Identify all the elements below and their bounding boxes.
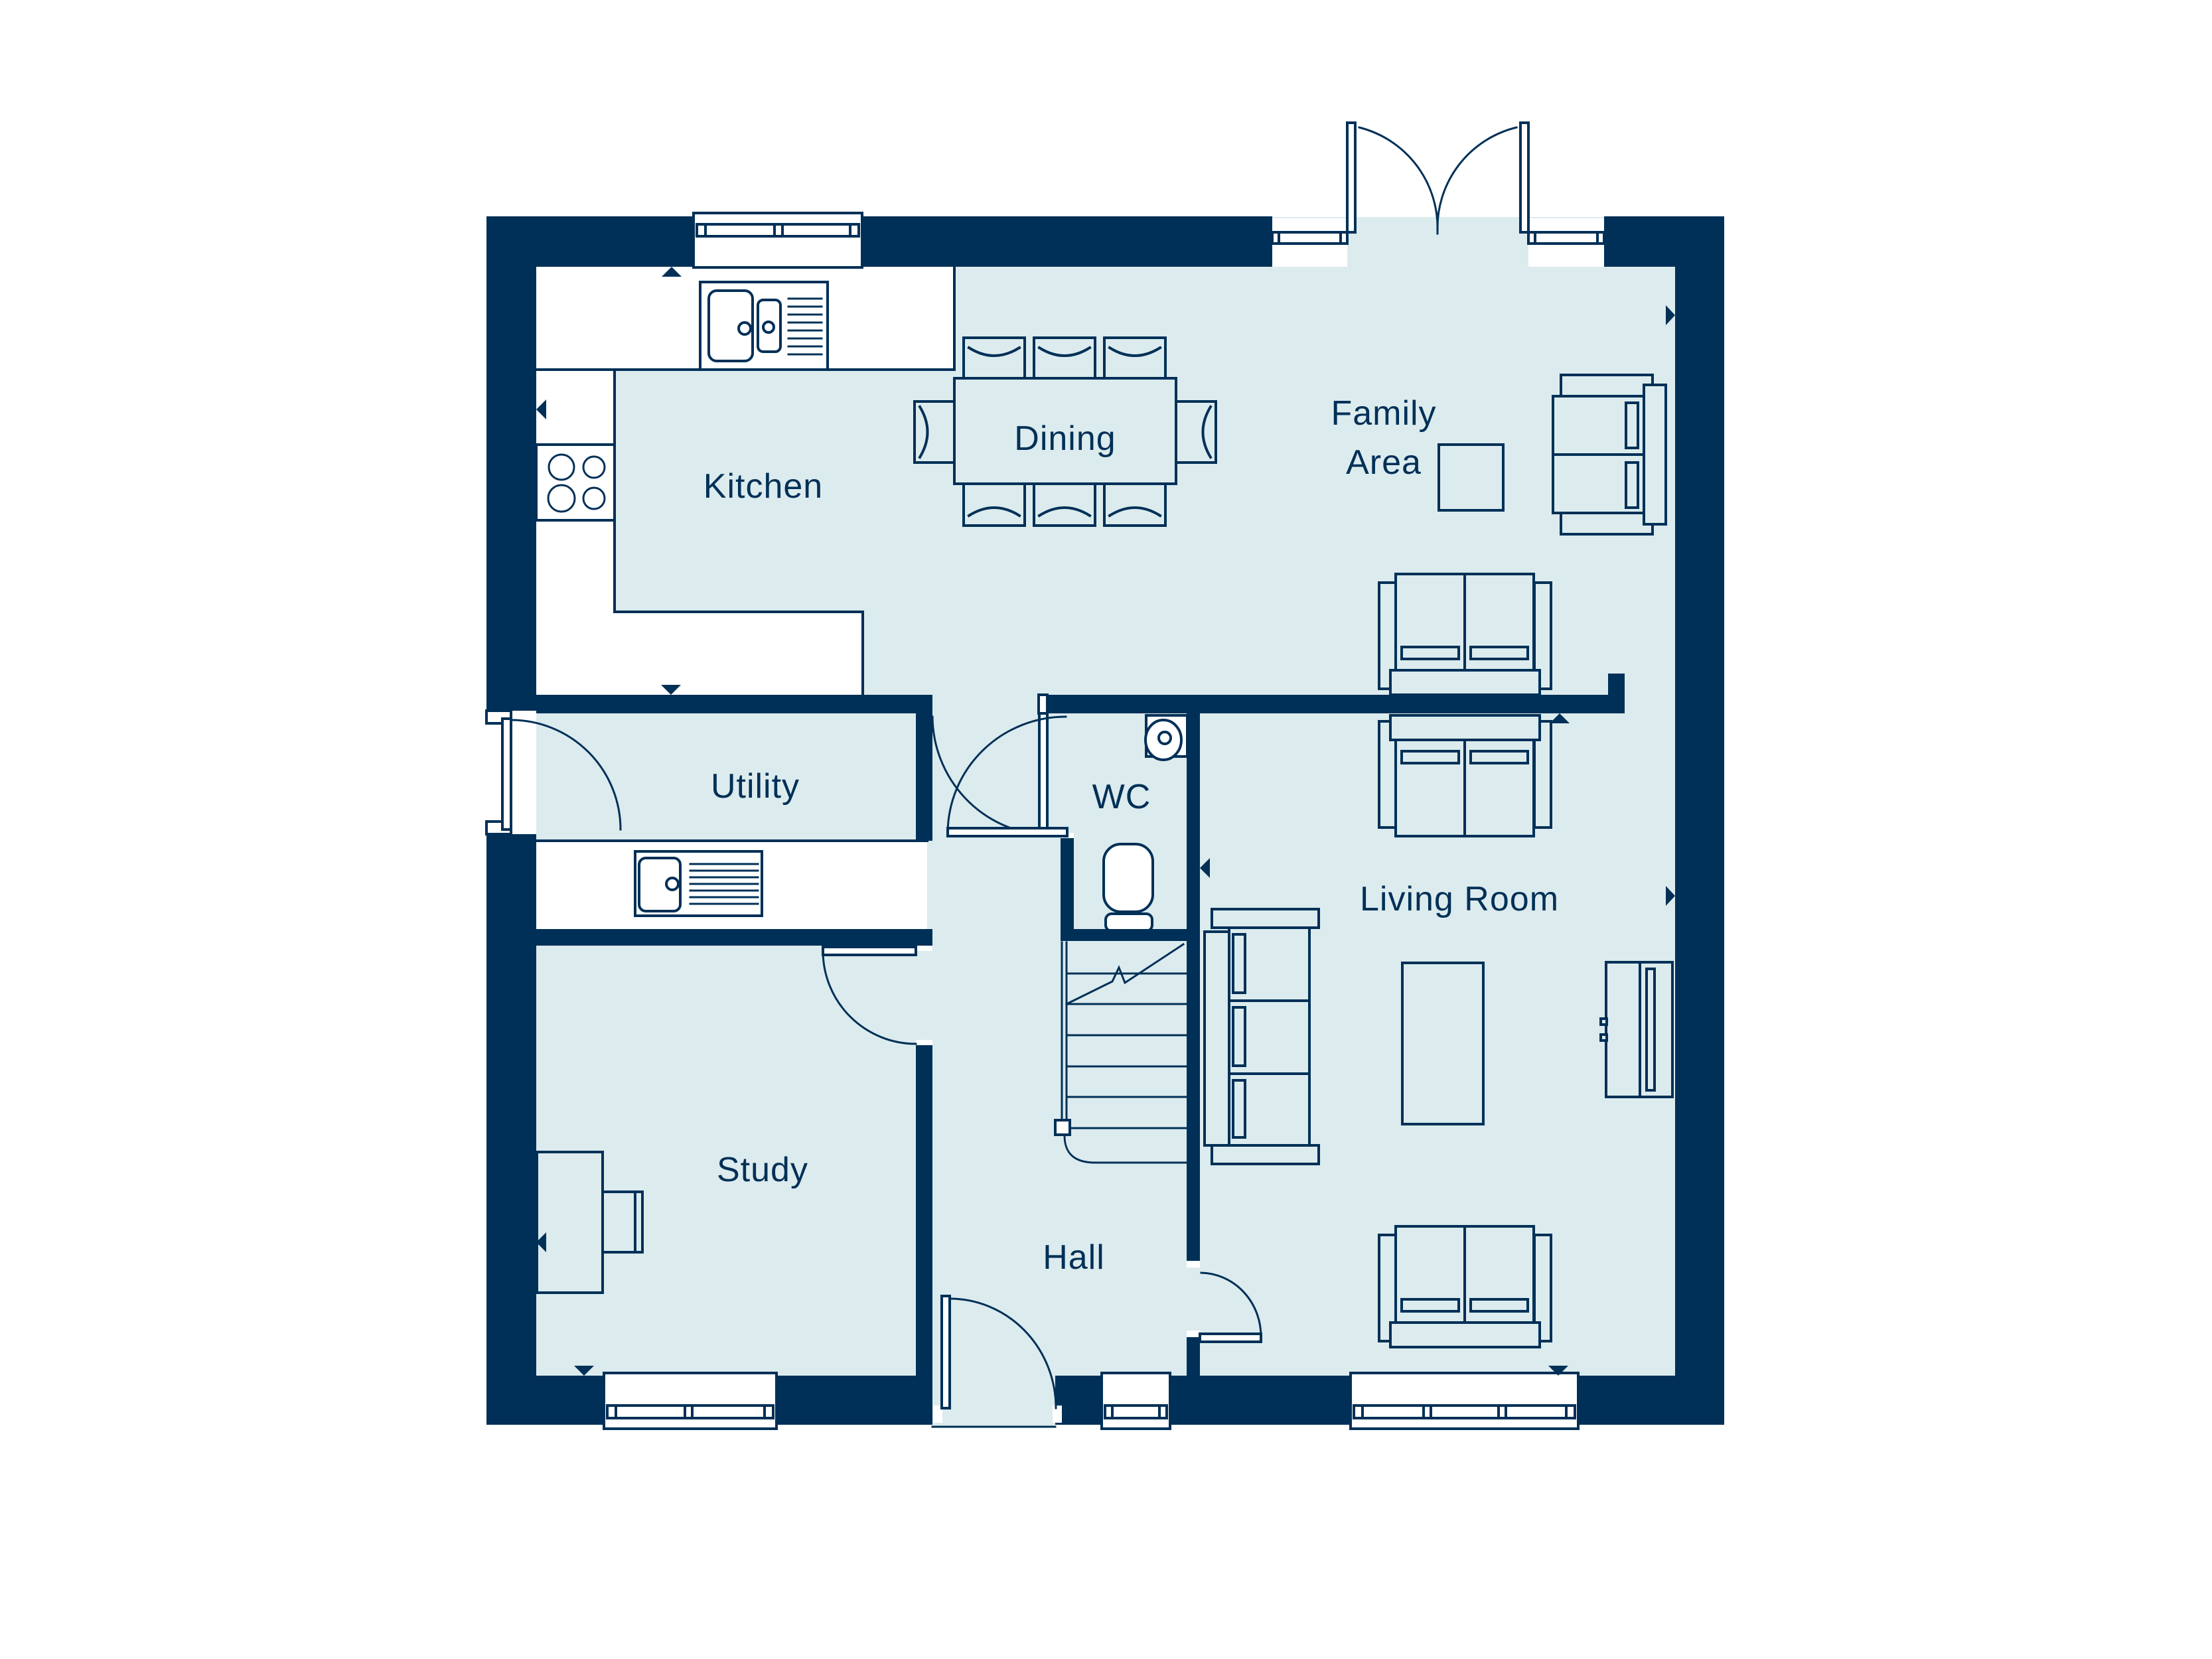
door-leaf (1039, 713, 1047, 835)
study-window-icon (604, 1373, 776, 1429)
toilet-icon (1104, 844, 1153, 931)
room-label-utility: Utility (711, 767, 800, 806)
dining-chair (1104, 484, 1165, 526)
living-sofa-north (1379, 715, 1551, 836)
tv-unit-icon (1601, 962, 1672, 1097)
floorplan-page: Kitchen Dining Family Area Utility WC Li… (0, 0, 2212, 1659)
living-coffee-table (1402, 963, 1483, 1124)
room-label-dining: Dining (1014, 419, 1116, 458)
utility-sink-icon (635, 851, 762, 916)
family-armchair (1553, 375, 1666, 534)
door-swing-arc (1438, 127, 1516, 231)
door-leaf (502, 719, 511, 829)
sidelight-window-icon (1272, 218, 1347, 267)
living-sofa-south (1379, 1226, 1551, 1347)
living-sofa-three-seat (1205, 909, 1319, 1164)
dining-chair (1034, 484, 1095, 526)
wash-basin-icon (1145, 715, 1187, 760)
ground-floor-plan: Kitchen Dining Family Area Utility WC Li… (0, 0, 2212, 1659)
dining-chair (1034, 338, 1095, 378)
room-label-kitchen: Kitchen (703, 467, 823, 506)
stair-newel-post (1055, 1120, 1070, 1135)
door-leaf (942, 1296, 950, 1408)
dining-chair (915, 401, 954, 463)
door-leaf (948, 828, 1067, 836)
room-label-study: Study (717, 1151, 808, 1189)
hall-window-icon (1102, 1373, 1170, 1429)
kitchen-window-icon (694, 213, 862, 267)
dining-chair (964, 338, 1025, 378)
door-leaf (1200, 1334, 1261, 1342)
kitchen-sink-icon (700, 282, 828, 370)
room-label-living-room: Living Room (1360, 880, 1559, 918)
family-sofa (1379, 574, 1551, 695)
room-label-hall: Hall (1043, 1238, 1105, 1277)
living-room-window-icon (1351, 1373, 1578, 1429)
room-label-family-area-line1: Family (1331, 394, 1436, 433)
dining-chair (1176, 401, 1216, 463)
door-post (1347, 123, 1355, 232)
room-label-wc: WC (1092, 778, 1151, 816)
room-label-family-area-line2: Area (1346, 443, 1422, 482)
door-leaf (823, 947, 916, 955)
hob-icon (536, 445, 615, 520)
sidelight-window-icon (1528, 218, 1604, 267)
dining-chair (964, 484, 1025, 526)
dining-chair (1104, 338, 1165, 378)
family-side-table (1439, 445, 1503, 510)
door-post (1520, 123, 1528, 232)
